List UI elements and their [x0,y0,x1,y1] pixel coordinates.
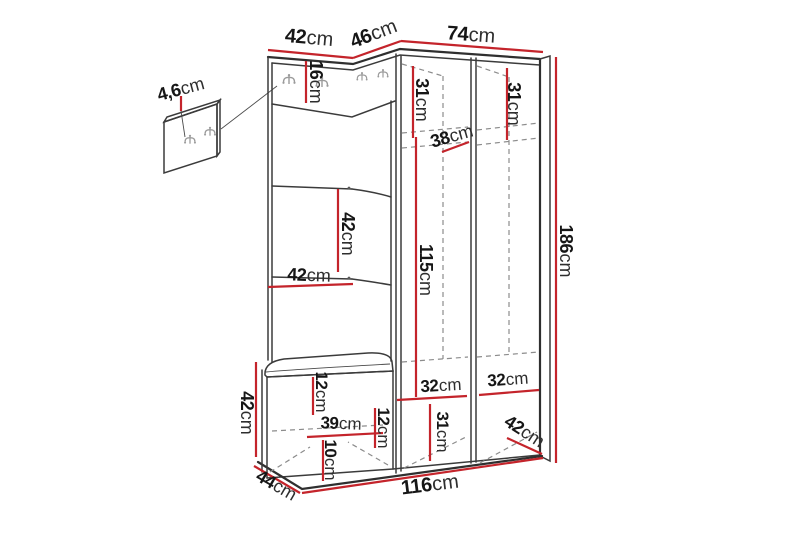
furniture-dimension-diagram: 4,6cm 42cm 46cm 74cm 16cm 31cm 31cm 38cm… [0,0,800,533]
dim-label-right-compartment-bottom-width: 32cm [487,369,529,391]
unit-hooks [282,69,388,87]
dim-label-bottom-compartment-height: 31cm [433,411,452,452]
dim-label-interior-height: 115cm [416,244,436,296]
dim-label-right-section-top-width: 74cm [446,23,496,48]
coat-hook-icon [204,127,216,136]
dim-label-left-section-top-width: 42cm [284,25,334,51]
dim-label-right-compartment-top-width: 31cm [504,82,524,126]
coat-hook-icon [377,69,388,78]
dim-label-hook-strip-height: 16cm [306,60,326,104]
dim-label-bench-height: 42cm [237,391,257,435]
coat-hook-icon [356,72,367,81]
dim-label-corner-section-width: 46cm [347,15,400,53]
diagram-page: 4,6cm 42cm 46cm 74cm 16cm 31cm 31cm 38cm… [0,0,800,533]
coat-hook-icon [184,135,196,144]
dim-line-left-compartment-bottom-width [397,396,467,400]
dim-label-bench-base-height: 10cm [321,439,340,480]
dim-label-bench-interior-width: 39cm [320,414,362,434]
dim-label-bench-depth: 44cm [253,465,301,504]
dim-label-total-height: 186cm [556,224,576,277]
dim-label-bench-shelf-offset: 12cm [374,407,393,448]
dim-label-top-shelf-depth: 38cm [428,120,475,151]
dimension-lines [181,41,556,493]
dim-label-left-compartment-bottom-width: 32cm [420,375,462,396]
dim-label-bench-top-offset: 12cm [312,371,331,412]
dimension-labels: 4,6cm 42cm 46cm 74cm 16cm 31cm 31cm 38cm… [155,15,576,504]
coat-hook-icon [282,74,295,84]
dim-label-panel-niche-width: 42cm [287,264,331,286]
dim-label-left-compartment-top-width: 31cm [412,78,432,122]
dim-label-panel-section-height: 42cm [338,212,358,256]
dim-line-left-section-top-width [268,50,353,58]
